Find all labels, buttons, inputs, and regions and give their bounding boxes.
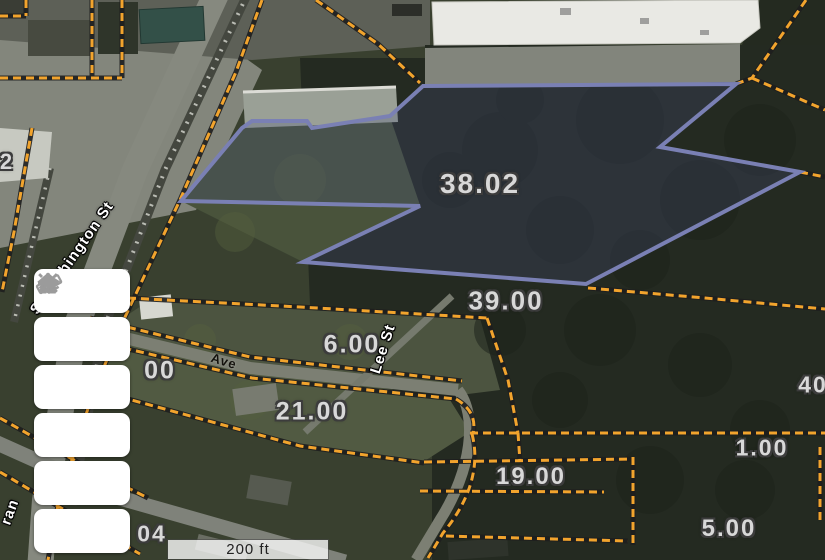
toolbar-button-locate[interactable] (34, 317, 130, 361)
toolbar-button-zoom-out[interactable] (34, 461, 130, 505)
toolbar-button-measure[interactable] (34, 365, 130, 409)
map-viewport[interactable]: 38.0239.006.000021.0019.001.00405.00042S… (0, 0, 825, 560)
building-industrial-white (432, 0, 760, 45)
driveway-strip (425, 44, 740, 86)
parked-cars (392, 4, 422, 16)
building-teal (139, 6, 205, 43)
toolbar-button-layers[interactable] (34, 509, 130, 553)
scale-bar: 200 ft (168, 540, 328, 559)
scale-bar-label: 200 ft (226, 541, 270, 558)
map-toolbar (34, 269, 130, 557)
toolbar-button-zoom-in[interactable] (34, 413, 130, 457)
